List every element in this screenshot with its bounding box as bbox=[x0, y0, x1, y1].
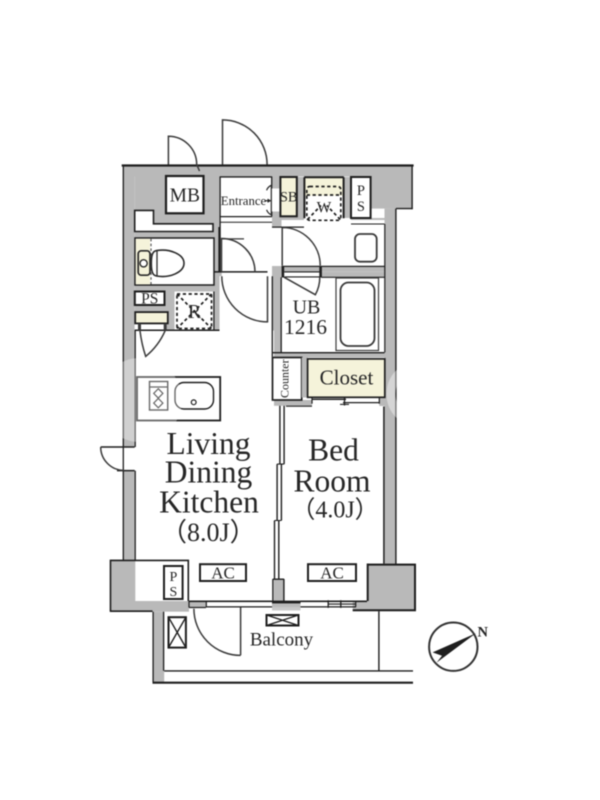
svg-text:W: W bbox=[317, 200, 332, 217]
svg-text:Room: Room bbox=[293, 464, 371, 499]
svg-text:P: P bbox=[357, 183, 365, 199]
svg-text:MB: MB bbox=[170, 186, 200, 207]
svg-text:SB: SB bbox=[280, 190, 298, 206]
svg-text:（4.0J）: （4.0J） bbox=[291, 498, 378, 524]
svg-text:S: S bbox=[170, 585, 178, 600]
svg-text:Entrance: Entrance bbox=[221, 194, 267, 208]
svg-text:S: S bbox=[357, 199, 365, 215]
svg-text:1216: 1216 bbox=[284, 315, 327, 339]
svg-text:P: P bbox=[170, 570, 178, 585]
svg-text:AC: AC bbox=[320, 564, 344, 583]
svg-text:Balcony: Balcony bbox=[250, 630, 314, 651]
svg-text:Bed: Bed bbox=[308, 433, 359, 468]
svg-text:AC: AC bbox=[211, 564, 235, 583]
svg-text:Closet: Closet bbox=[320, 366, 374, 390]
svg-text:（8.0J）: （8.0J） bbox=[161, 518, 256, 547]
svg-text:N: N bbox=[478, 625, 489, 641]
svg-text:PS: PS bbox=[141, 290, 158, 307]
svg-text:R: R bbox=[188, 302, 201, 323]
svg-text:Counter: Counter bbox=[278, 359, 292, 398]
svg-text:Kitchen: Kitchen bbox=[159, 485, 259, 520]
